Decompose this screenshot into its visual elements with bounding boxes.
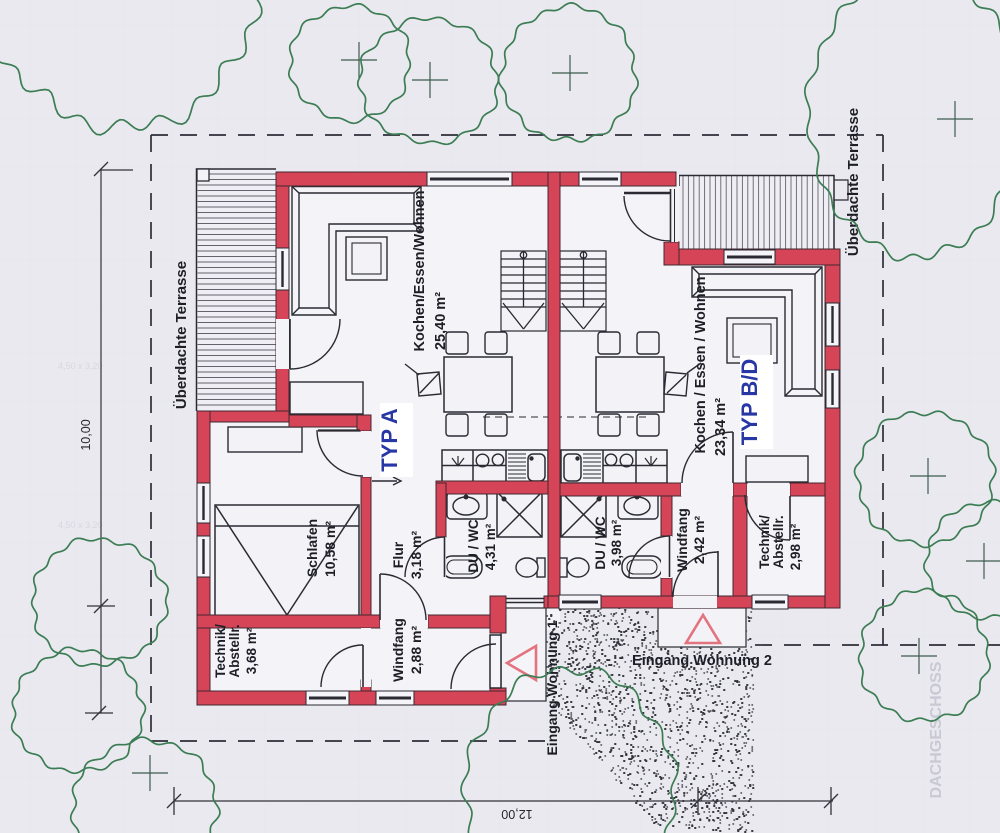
svg-text:TYP B/D: TYP B/D: [737, 359, 762, 445]
svg-text:Kochen/Essen/Wohnen: Kochen/Essen/Wohnen: [412, 191, 428, 352]
svg-text:Abstellr.: Abstellr.: [227, 624, 242, 677]
svg-text:Flur: Flur: [390, 541, 406, 568]
svg-text:DU / WC: DU / WC: [593, 516, 608, 569]
svg-text:2,98 m²: 2,98 m²: [788, 523, 803, 570]
svg-text:Kochen / Essen / Wohnen: Kochen / Essen / Wohnen: [693, 277, 709, 454]
svg-text:Abstellr.: Abstellr.: [771, 515, 786, 568]
svg-text:DU / WC: DU / WC: [466, 519, 481, 572]
svg-text:3,68 m²: 3,68 m²: [244, 627, 259, 674]
svg-text:4,50 x 3,20: 4,50 x 3,20: [58, 520, 103, 530]
svg-text:Überdachte Terrasse: Überdachte Terrasse: [173, 261, 190, 409]
svg-text:4,50 x 3,20: 4,50 x 3,20: [58, 361, 103, 371]
svg-text:Eingang Wohnung 1: Eingang Wohnung 1: [544, 620, 560, 755]
svg-text:Eingang Wohnung 2: Eingang Wohnung 2: [632, 653, 772, 669]
svg-text:25,40 m²: 25,40 m²: [433, 292, 449, 350]
svg-text:3,18 m²: 3,18 m²: [408, 531, 424, 580]
svg-text:2,88 m²: 2,88 m²: [408, 626, 424, 675]
svg-text:DACHGESCHOSS: DACHGESCHOSS: [928, 661, 945, 798]
svg-text:2,42 m²: 2,42 m²: [691, 516, 707, 565]
svg-text:TYP A: TYP A: [377, 408, 402, 472]
svg-text:4,31 m²: 4,31 m²: [483, 523, 498, 570]
svg-text:23,34 m²: 23,34 m²: [713, 398, 729, 456]
svg-text:10,58 m²: 10,58 m²: [322, 521, 338, 577]
svg-text:Technik/: Technik/: [213, 624, 228, 678]
svg-text:Technik/: Technik/: [757, 515, 772, 569]
svg-text:3,98 m²: 3,98 m²: [609, 519, 624, 566]
svg-text:Windfang: Windfang: [674, 508, 690, 572]
svg-text:Schlafen: Schlafen: [304, 519, 320, 577]
svg-text:Windfang: Windfang: [390, 618, 406, 682]
svg-text:12,00: 12,00: [501, 807, 532, 821]
svg-text:10,00: 10,00: [79, 419, 93, 450]
